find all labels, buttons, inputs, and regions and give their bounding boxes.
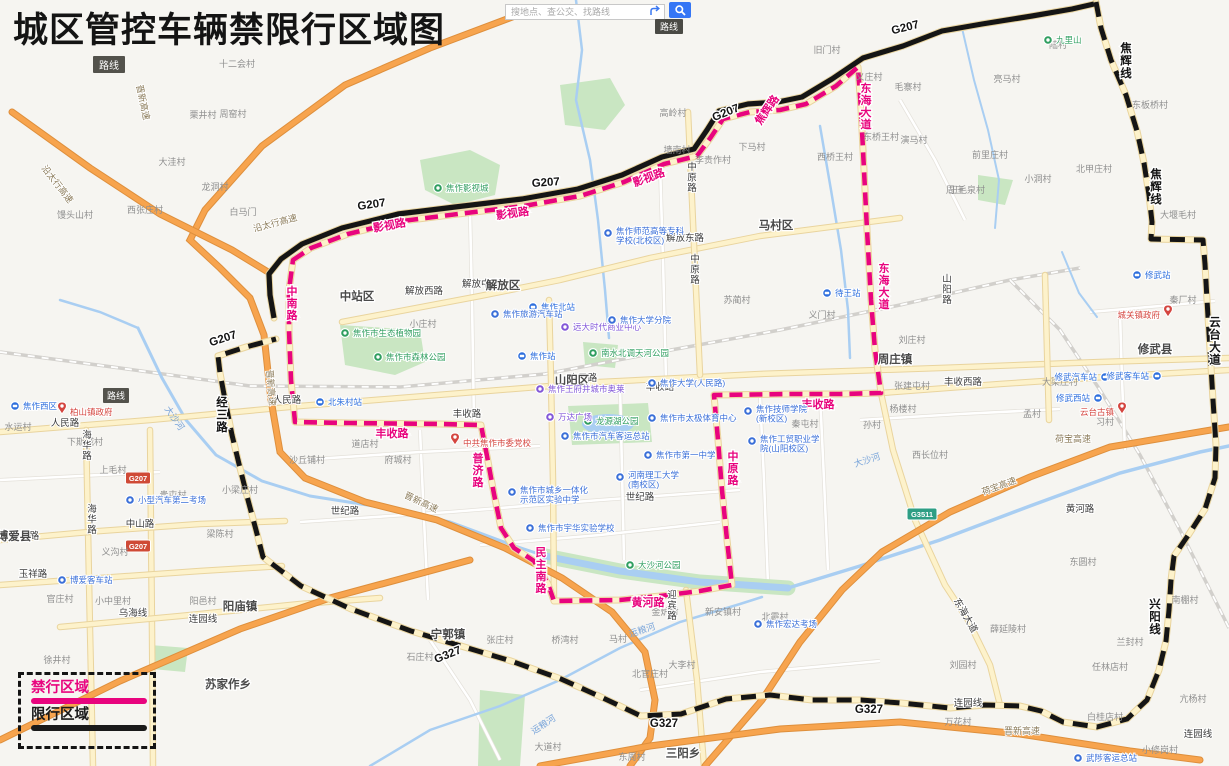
village-label: 秦屯村 bbox=[791, 418, 818, 429]
village-label: 东圆村 bbox=[1069, 556, 1096, 567]
village-label: 毛寨村 bbox=[894, 81, 921, 92]
village-label: 孙村 bbox=[863, 419, 881, 430]
village-label: 龙洞村 bbox=[201, 181, 228, 192]
district-label: 马村区 bbox=[759, 218, 794, 232]
poi-label: 焦作王府井城市奥莱 bbox=[548, 384, 625, 394]
poi-label: 焦作旅游汽车站 bbox=[503, 309, 563, 319]
village-label: 北官庄村 bbox=[632, 668, 668, 679]
road-label: 中原路 bbox=[687, 161, 697, 194]
poi-label: 小型汽车第二考场 bbox=[138, 495, 206, 505]
poi-marker[interactable]: 焦作市城乡一体化示范区实验中学 bbox=[508, 485, 589, 505]
road-label: 连园线 bbox=[954, 697, 983, 709]
prohibited-road-label: 丰收路 bbox=[376, 426, 410, 440]
legend-box: 禁行区域 限行区域 bbox=[18, 672, 156, 749]
prohibited-road-label: 东海大道 bbox=[879, 261, 890, 311]
district-label: 修武县 bbox=[1137, 342, 1173, 356]
poi-label: 焦作站 bbox=[530, 351, 556, 361]
poi-label: 北朱村站 bbox=[328, 397, 363, 407]
village-label: 亢杨村 bbox=[1179, 693, 1206, 704]
road-label: 丰收路 bbox=[453, 408, 482, 420]
poi-marker[interactable]: 焦作大学(人民路) bbox=[648, 378, 726, 388]
village-label: 秦厂村 bbox=[1169, 294, 1196, 305]
poi-label: 焦作市城乡一体化示范区实验中学 bbox=[520, 485, 589, 505]
village-label: 石庄村 bbox=[406, 651, 433, 662]
poi-marker[interactable]: 焦作站 bbox=[518, 351, 556, 361]
poi-marker[interactable]: 焦作王府井城市奥莱 bbox=[536, 384, 625, 394]
district-label: 三阳乡 bbox=[666, 746, 701, 760]
district-label: 宁郭镇 bbox=[431, 627, 466, 641]
village-label: 下马村 bbox=[738, 141, 765, 152]
legend-no-drive-bar bbox=[31, 698, 147, 704]
village-label: 义门村 bbox=[808, 309, 835, 320]
village-label: 十二会村 bbox=[219, 58, 255, 69]
village-label: 兰封村 bbox=[1116, 636, 1143, 647]
poi-label: 焦作影视城 bbox=[446, 183, 489, 193]
village-label: 小洞村 bbox=[1024, 173, 1051, 184]
village-label: 桥湾村 bbox=[551, 634, 578, 645]
village-label: 前里庄村 bbox=[972, 149, 1008, 160]
search-input[interactable] bbox=[505, 4, 665, 20]
road-shield: G207 bbox=[126, 472, 151, 484]
restricted-road-label: 经三路 bbox=[216, 395, 228, 434]
poi-marker[interactable]: 修武站 bbox=[1133, 270, 1171, 280]
poi-label: 云台古镇 bbox=[1080, 407, 1115, 417]
poi-label: 南水北调天河公园 bbox=[601, 348, 669, 358]
route-badge-top: 路线 bbox=[93, 56, 125, 73]
road-label: 连园线 bbox=[1184, 728, 1213, 740]
village-label: 小修岗村 bbox=[1142, 744, 1178, 755]
village-label: 阳邑村 bbox=[189, 595, 216, 606]
village-label: 大洼村 bbox=[158, 156, 185, 167]
poi-label: 修武汽车站 bbox=[1054, 372, 1097, 382]
road-label: 解放西路 bbox=[405, 285, 444, 297]
village-label: 水运村 bbox=[4, 421, 31, 432]
village-label: 大李村 bbox=[668, 659, 695, 670]
village-label: 高岭村 bbox=[659, 107, 686, 118]
poi-label: 焦作市宇华实验学校 bbox=[538, 523, 615, 533]
village-label: 西桥王村 bbox=[817, 151, 853, 162]
poi-marker[interactable]: 南水北调天河公园 bbox=[589, 348, 669, 358]
district-label: 苏家作乡 bbox=[205, 677, 251, 691]
poi-marker[interactable]: 焦作市生态植物园 bbox=[341, 328, 421, 338]
poi-label: 焦作市生态植物园 bbox=[353, 328, 421, 338]
village-label: 官庄村 bbox=[46, 593, 73, 604]
village-label: 薛延陵村 bbox=[990, 623, 1026, 634]
poi-label: 待王站 bbox=[835, 288, 861, 298]
poi-marker[interactable]: 九里山 bbox=[1044, 35, 1082, 45]
poi-label: 修武站 bbox=[1145, 270, 1171, 280]
village-label: 徐井村 bbox=[43, 654, 70, 665]
poi-label: 焦作市汽车客运总站 bbox=[573, 431, 650, 441]
prohibited-road-label: 中南路 bbox=[287, 284, 299, 322]
poi-marker[interactable]: 小型汽车第二考场 bbox=[126, 495, 206, 505]
svg-text:G207: G207 bbox=[129, 542, 147, 551]
page-title: 城区管控车辆禁限行区域图 bbox=[13, 2, 445, 53]
village-label: 南棚村 bbox=[1171, 594, 1198, 605]
restricted-road-label: G327 bbox=[650, 718, 678, 730]
search-bar bbox=[505, 2, 691, 18]
village-label: 西长位村 bbox=[912, 449, 948, 460]
village-label: 张建屯村 bbox=[894, 380, 930, 391]
village-label: 东桥王村 bbox=[863, 131, 899, 142]
poi-label: 博爱客车站 bbox=[70, 575, 113, 585]
poi-marker[interactable]: 万达广场 bbox=[546, 412, 592, 422]
poi-label: 柏山镇政府 bbox=[70, 407, 113, 417]
poi-marker[interactable]: 焦作市宇华实验学校 bbox=[526, 523, 615, 533]
search-button[interactable] bbox=[669, 2, 691, 18]
poi-marker[interactable]: 焦作西区 bbox=[11, 401, 58, 411]
village-label: 馒头山村 bbox=[57, 209, 93, 220]
poi-marker[interactable]: 北朱村站 bbox=[316, 397, 363, 407]
village-label: 上毛村 bbox=[99, 464, 126, 475]
village-label: 亮马村 bbox=[993, 73, 1020, 84]
village-label: 大道村 bbox=[534, 741, 561, 752]
poi-label: 焦作大学分院 bbox=[620, 315, 672, 325]
poi-label: 万达广场 bbox=[558, 412, 592, 422]
poi-marker[interactable]: 修武西站 bbox=[1056, 393, 1102, 403]
route-tooltip: 路线 bbox=[655, 19, 683, 34]
road-label: 迎宾路 bbox=[667, 589, 677, 622]
village-label: 孟村 bbox=[1023, 408, 1041, 419]
highway-label: 荷宝高速 bbox=[1055, 433, 1091, 444]
village-label: 东周村 bbox=[618, 751, 645, 762]
prohibited-road-label: 黄河路 bbox=[632, 595, 666, 609]
village-label: 小中里村 bbox=[95, 595, 131, 606]
magnifier-icon bbox=[674, 4, 687, 17]
poi-marker[interactable]: 焦作市汽车客运总站 bbox=[561, 431, 650, 441]
village-label: 周庄 bbox=[946, 184, 964, 195]
district-label: 阳庙镇 bbox=[223, 599, 258, 613]
village-label: 刘庄村 bbox=[898, 334, 925, 345]
route-badge-left: 路线 bbox=[103, 388, 129, 403]
restricted-road-label: G327 bbox=[855, 704, 883, 716]
village-label: 习村 bbox=[1096, 416, 1114, 427]
village-label: 刘园村 bbox=[949, 659, 976, 670]
road-label: 海华路 bbox=[82, 429, 92, 462]
restricted-road-label: 焦辉线 bbox=[1119, 41, 1132, 80]
poi-marker[interactable]: 焦作市太极体育中心 bbox=[648, 413, 737, 423]
road-label: 中山路 bbox=[126, 518, 155, 530]
village-label: 义沟村 bbox=[101, 546, 128, 557]
prohibited-road-label: 民主南路 bbox=[536, 546, 548, 595]
village-label: 周窑村 bbox=[219, 108, 246, 119]
poi-label: 焦作西区 bbox=[23, 401, 58, 411]
village-label: 新安镇村 bbox=[705, 606, 741, 617]
road-label: 世纪路 bbox=[626, 491, 655, 503]
village-label: 大堰毛村 bbox=[1160, 209, 1196, 220]
road-shield: G207 bbox=[126, 540, 151, 552]
route-icon[interactable] bbox=[649, 4, 662, 16]
prohibited-road-label: 东海大道 bbox=[861, 81, 872, 131]
restricted-road-label: 焦辉线 bbox=[1149, 167, 1162, 206]
poi-label: 龙源湖公园 bbox=[596, 416, 639, 426]
road-label: 山阳路 bbox=[942, 274, 952, 306]
poi-label: 焦作市第一中学 bbox=[656, 450, 716, 460]
poi-label: 修武客车站 bbox=[1106, 371, 1149, 381]
road-shield: G3511 bbox=[907, 508, 937, 520]
road-label: 中原路 bbox=[690, 253, 700, 286]
poi-label: 大沙河公园 bbox=[638, 560, 681, 570]
district-label: 中站区 bbox=[340, 289, 375, 303]
road-label: 连园线 bbox=[189, 613, 218, 625]
poi-label: 修武西站 bbox=[1056, 393, 1091, 403]
road-label: 玉祥路 bbox=[19, 568, 48, 580]
village-label: 东板桥村 bbox=[1132, 99, 1168, 110]
road-label: 乌海线 bbox=[119, 607, 148, 619]
village-label: 白马门 bbox=[229, 206, 256, 217]
village-label: 杨楼村 bbox=[889, 403, 916, 414]
search-input-wrap bbox=[505, 2, 665, 18]
road-label: 黄河路 bbox=[1066, 503, 1095, 515]
legend-restrict-bar bbox=[31, 725, 147, 731]
village-label: 沙丘铺村 bbox=[289, 454, 325, 465]
poi-label: 中共焦作市委党校 bbox=[463, 438, 532, 448]
village-label: 苏蔺村 bbox=[723, 294, 750, 305]
village-label: 万花村 bbox=[944, 716, 971, 727]
village-label: 李贵作村 bbox=[695, 154, 731, 165]
prohibited-road-label: 中原路 bbox=[728, 449, 740, 487]
highway-label: 晋新高速 bbox=[1004, 725, 1040, 736]
svg-text:G3511: G3511 bbox=[911, 510, 933, 519]
village-label: 马村 bbox=[609, 633, 627, 644]
village-label: 义庄村 bbox=[855, 71, 882, 82]
prohibited-road-label: 普济路 bbox=[473, 451, 485, 489]
village-label: 旧门村 bbox=[813, 44, 840, 55]
legend-no-drive-label: 禁行区域 bbox=[31, 680, 143, 696]
village-label: 梁陈村 bbox=[206, 528, 233, 539]
road-label: 世纪路 bbox=[331, 505, 360, 517]
village-label: 张庄村 bbox=[486, 634, 513, 645]
road-label: 人民路 bbox=[51, 417, 80, 429]
village-label: 任林店村 bbox=[1092, 661, 1128, 672]
map-page: G207G207G3511十二会村周窑村栗井村大洼村龙洞村白马门西张庄村馒头山村… bbox=[0, 0, 1229, 766]
village-label: 府城村 bbox=[384, 454, 411, 465]
village-label: 小梁庄村 bbox=[222, 484, 258, 495]
road-label: 海华路 bbox=[87, 503, 97, 536]
village-label: 白桂店村 bbox=[1087, 711, 1123, 722]
village-label: 北甲庄村 bbox=[1076, 163, 1112, 174]
map-canvas[interactable]: G207G207G3511十二会村周窑村栗井村大洼村龙洞村白马门西张庄村馒头山村… bbox=[0, 0, 1229, 766]
restricted-road-label: 云台大道 bbox=[1209, 316, 1221, 367]
poi-label: 九里山 bbox=[1056, 35, 1082, 45]
poi-label: 焦作市太极体育中心 bbox=[660, 413, 737, 423]
poi-label: 焦作市森林公园 bbox=[386, 352, 446, 362]
village-label: 栗井村 bbox=[189, 109, 216, 120]
poi-label: 武陟客运总站 bbox=[1086, 753, 1138, 763]
svg-text:G207: G207 bbox=[129, 474, 147, 483]
poi-label: 焦作大学(人民路) bbox=[660, 378, 725, 388]
poi-marker[interactable]: 待王站 bbox=[823, 288, 861, 298]
district-label: 博爱县 bbox=[0, 529, 32, 543]
village-label: 西张庄村 bbox=[127, 204, 163, 215]
road-label: 丰收西路 bbox=[944, 376, 983, 388]
village-label: 墙南村 bbox=[663, 144, 690, 155]
restricted-road-label: 兴阳线 bbox=[1149, 597, 1161, 636]
restricted-road-label: G207 bbox=[531, 176, 560, 190]
legend-restrict-label: 限行区域 bbox=[31, 707, 143, 723]
village-label: 道店村 bbox=[351, 438, 378, 449]
poi-label: 城关镇政府 bbox=[1117, 310, 1160, 320]
village-label: 演马村 bbox=[900, 134, 927, 145]
poi-label: 焦作宏达考场 bbox=[766, 619, 817, 629]
district-label: 周庄镇 bbox=[878, 352, 913, 366]
district-label: 解放区 bbox=[486, 278, 521, 292]
